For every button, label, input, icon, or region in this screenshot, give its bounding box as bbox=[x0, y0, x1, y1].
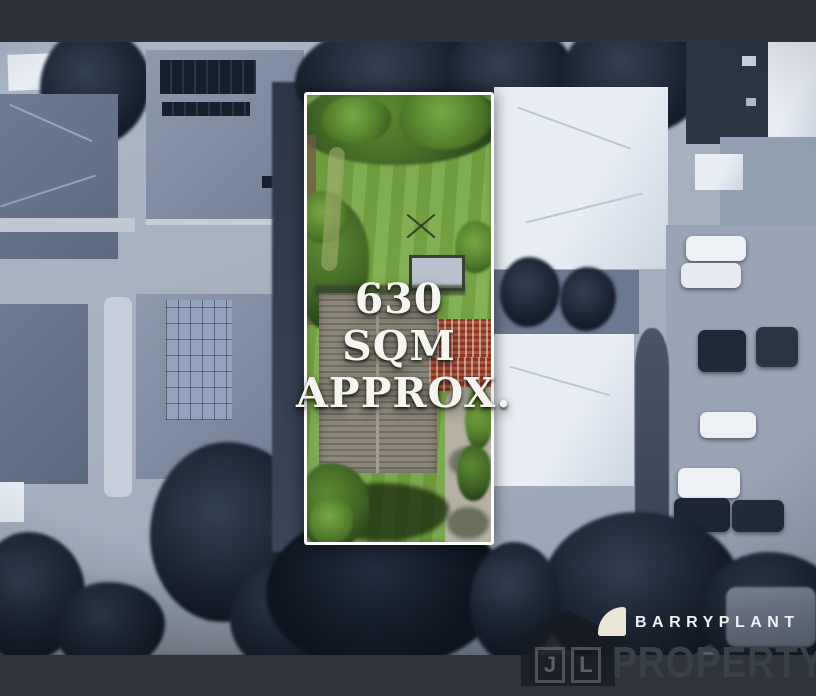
parked-car-dark bbox=[698, 330, 746, 372]
driveway-bush bbox=[457, 445, 491, 501]
roof-ridge-line bbox=[9, 104, 92, 142]
barryplant-name: BARRYPLANT bbox=[635, 611, 800, 632]
roof-ridge-line bbox=[0, 175, 96, 208]
dark-building bbox=[686, 42, 772, 144]
barryplant-logo: BARRYPLANT bbox=[598, 607, 800, 636]
land-area-label: 630 SQM APPROX. bbox=[296, 276, 502, 417]
skylight bbox=[746, 98, 756, 106]
tree-canopy bbox=[470, 542, 560, 655]
top-letterbox-bar bbox=[0, 0, 816, 42]
roof-ridge-line bbox=[517, 107, 630, 150]
backyard-tree-canopy bbox=[321, 97, 391, 143]
listing-photo-canvas: 630 SQM APPROX. J L PROPERTY BARRYPLANT bbox=[0, 0, 816, 696]
neighbor-roof-white bbox=[494, 87, 668, 269]
neighbor-roof-white bbox=[492, 334, 634, 486]
land-area-line2: APPROX. bbox=[296, 370, 502, 417]
path-strip bbox=[0, 218, 135, 232]
bottom-letterbox-bar bbox=[0, 655, 816, 696]
roof-ridge-line bbox=[510, 366, 611, 397]
parked-van-white bbox=[700, 412, 756, 438]
driveway-path bbox=[104, 297, 132, 497]
driveway-shadow bbox=[447, 507, 489, 539]
parked-car-white bbox=[681, 263, 741, 288]
parked-car-white bbox=[686, 236, 746, 261]
parked-car-dark bbox=[756, 327, 798, 367]
barryplant-sail-icon bbox=[598, 607, 626, 636]
skylight bbox=[742, 56, 756, 66]
solar-panel-grid bbox=[166, 300, 232, 420]
roof-ridge-line bbox=[526, 193, 643, 224]
solar-panel-array bbox=[160, 60, 256, 94]
parked-car-white bbox=[678, 468, 740, 498]
neighbor-roof bbox=[768, 42, 816, 150]
neighbor-roof bbox=[0, 304, 88, 484]
neighbor-roof bbox=[0, 94, 118, 259]
parked-car-dark bbox=[732, 500, 784, 532]
solar-panel-row bbox=[162, 102, 250, 116]
land-area-line1: 630 SQM bbox=[296, 276, 502, 370]
front-tree bbox=[309, 497, 353, 545]
light-roof-patch bbox=[0, 482, 24, 522]
white-shed-roof bbox=[695, 154, 743, 190]
